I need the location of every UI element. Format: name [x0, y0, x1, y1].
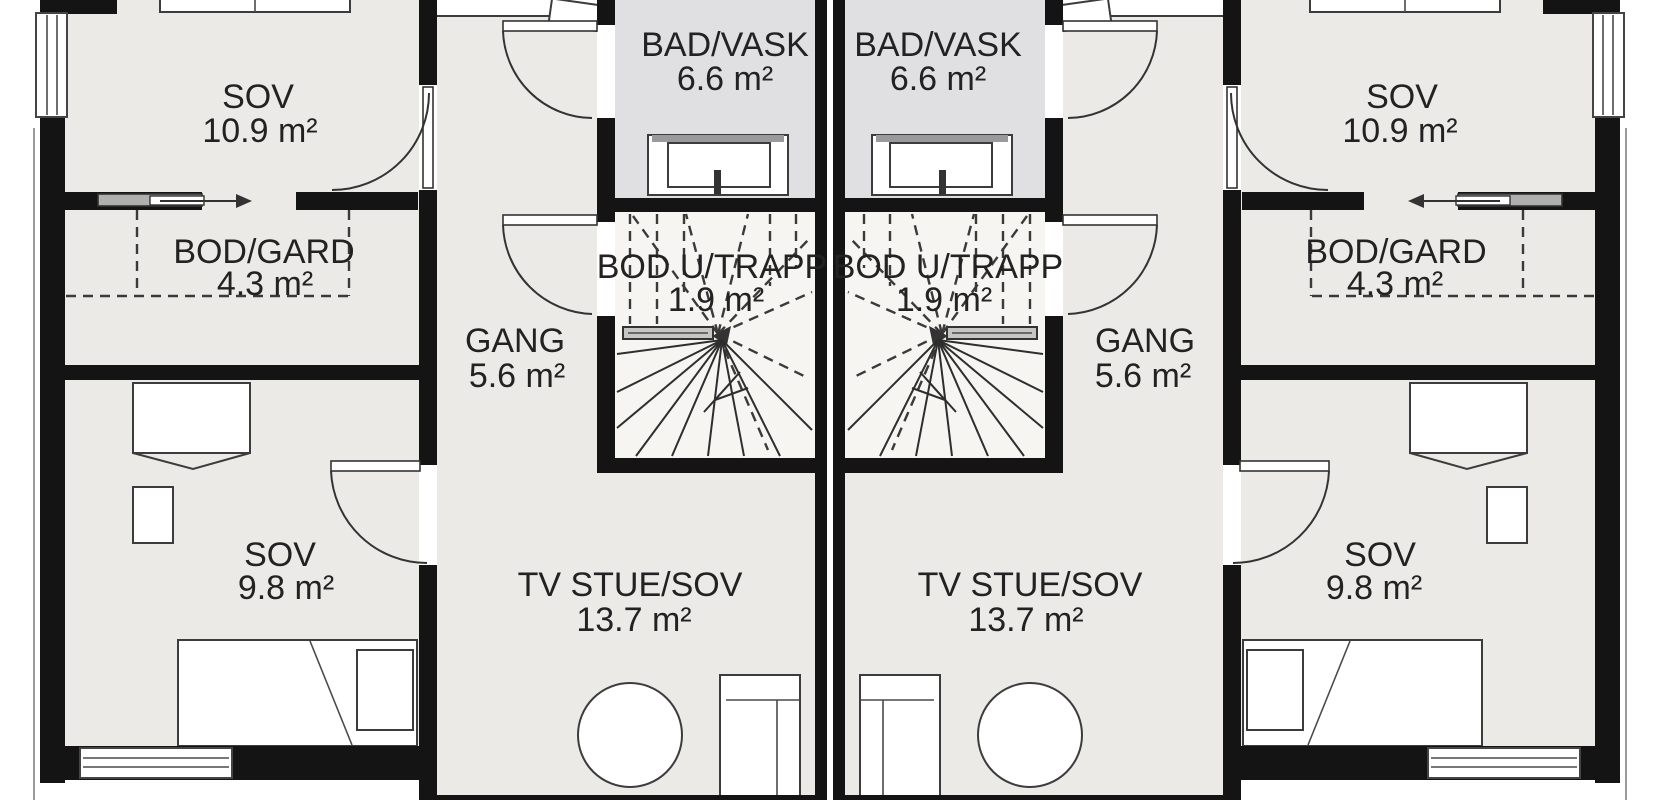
wall-top-stub — [62, 0, 117, 14]
label-gang-name-r: GANG — [1095, 322, 1195, 360]
corridor-wall-a — [419, 0, 437, 85]
door-opening — [597, 25, 615, 118]
label-tvstue-name: TV STUE/SOV — [518, 566, 743, 604]
window-frame — [80, 748, 232, 778]
label-tvstue-area: 13.7 m² — [576, 601, 691, 639]
wardrobe — [133, 383, 250, 453]
door-leaf — [503, 21, 597, 31]
party-wall-right-leaf — [833, 0, 845, 800]
label-sov1-name-r: SOV — [1366, 78, 1438, 116]
label-gang-area: 5.6 m² — [469, 357, 565, 395]
label-badvask-name-r: BAD/VASK — [854, 26, 1022, 64]
wall-bod-sov2 — [62, 365, 437, 380]
label-sov1-area: 10.9 m² — [202, 112, 317, 150]
bathroom-vanity — [648, 135, 788, 195]
party-wall-left-leaf — [815, 0, 827, 800]
label-sov2-area-r: 9.8 m² — [1326, 569, 1422, 607]
round-table — [578, 683, 682, 787]
label-sov1-area-r: 10.9 m² — [1342, 112, 1457, 150]
label-bodgard-area: 4.3 m² — [217, 265, 313, 303]
sofa — [720, 675, 800, 800]
window-left-wall — [36, 13, 67, 117]
door-leaf — [503, 215, 597, 225]
bed-pillow — [357, 650, 413, 730]
label-sov2-area: 9.8 m² — [238, 569, 334, 607]
label-tvstue-area-r: 13.7 m² — [968, 601, 1083, 639]
label-gang-name: GANG — [465, 322, 565, 360]
bath-wall-c — [597, 316, 615, 473]
vanity-faucet — [714, 170, 721, 194]
label-tvstue-name-r: TV STUE/SOV — [918, 566, 1143, 604]
floor-plan: SOV 10.9 m² BOD/GARD 4.3 m² BAD/VASK 6.6… — [0, 0, 1670, 800]
window-frame — [36, 13, 67, 117]
label-badvask-area: 6.6 m² — [677, 60, 773, 98]
label-bodgard-area-r: 4.3 m² — [1347, 265, 1443, 303]
door-leaf — [331, 461, 420, 471]
label-badvask-name: BAD/VASK — [641, 26, 809, 64]
stair-bottom-wall — [597, 458, 817, 473]
label-bodutrapp-area: 1.9 m² — [668, 281, 764, 319]
door-opening — [419, 465, 437, 565]
window-bottom-wall — [80, 748, 232, 778]
tvroom-bottom-wall-cut — [437, 795, 815, 800]
label-gang-area-r: 5.6 m² — [1095, 357, 1191, 395]
desk — [133, 487, 173, 543]
label-bodutrapp-area-r: 1.9 m² — [896, 281, 992, 319]
label-badvask-area-r: 6.6 m² — [890, 60, 986, 98]
label-sov1-name: SOV — [222, 78, 294, 116]
bath-bottom-wall — [615, 198, 815, 212]
corridor-wall-b — [419, 190, 437, 465]
bath-wall-b — [597, 118, 615, 222]
floor-plan-svg: SOV 10.9 m² BOD/GARD 4.3 m² BAD/VASK 6.6… — [0, 0, 1670, 800]
vanity-back-edge — [652, 135, 784, 142]
bath-wall-a — [597, 0, 615, 25]
unit-right — [843, 0, 1626, 800]
unit-left — [34, 0, 817, 800]
wall-sov-bod-b — [296, 192, 418, 210]
